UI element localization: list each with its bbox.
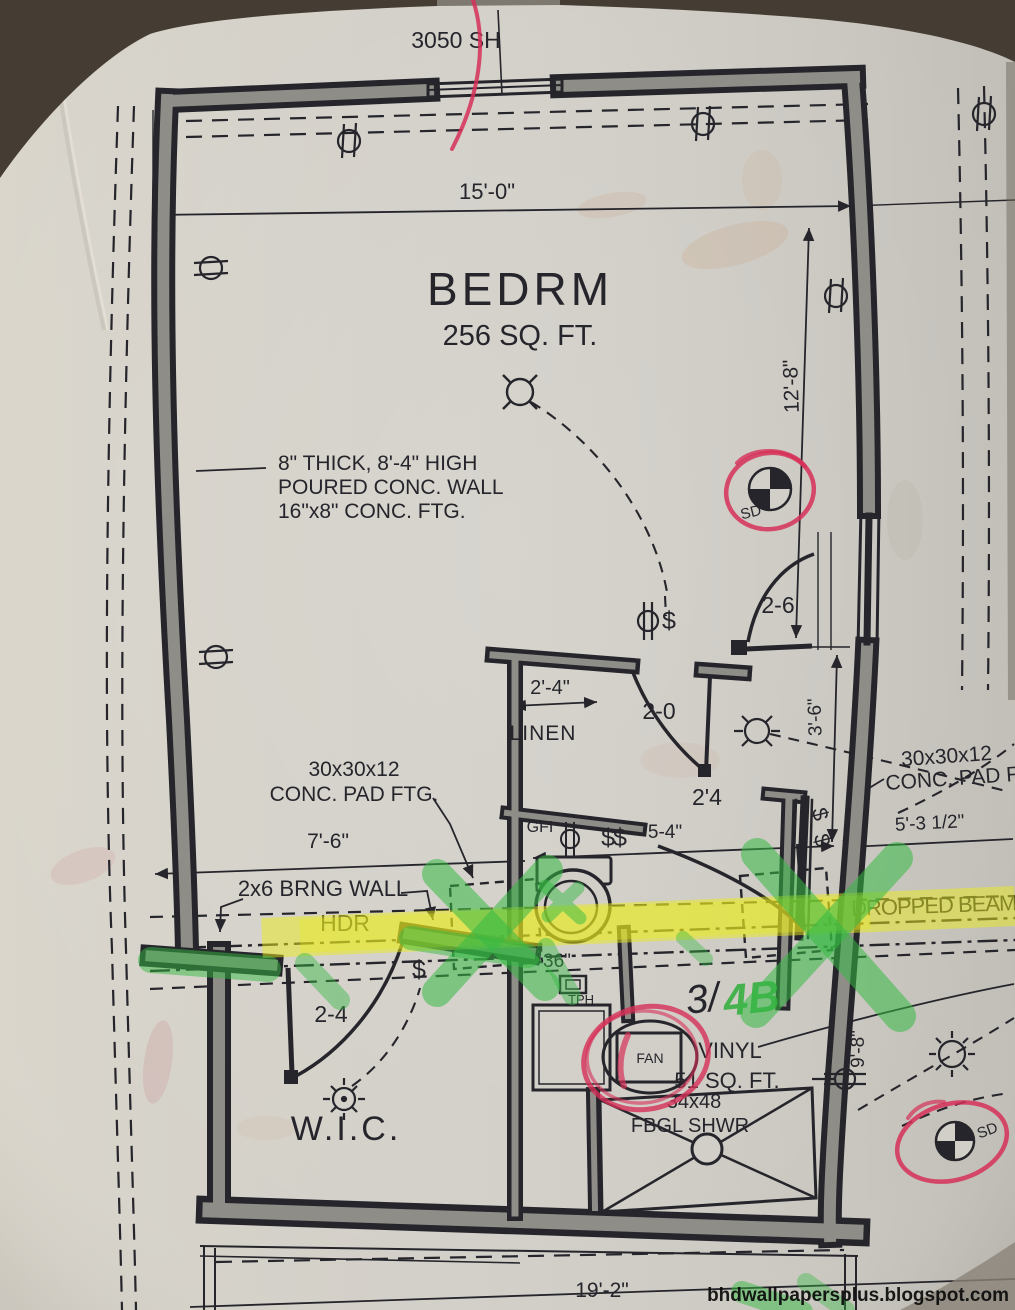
pad-left-line1: 30x30x12: [308, 758, 399, 781]
dim-bath-height: 9'-8": [848, 1030, 869, 1068]
wall-note-line2: POURED CONC. WALL: [278, 476, 504, 499]
dim-hall-depth: 3'-6": [804, 698, 826, 737]
dim-right-upper: 12'-8": [779, 359, 804, 413]
dim-top-width: 15'-0": [459, 179, 515, 204]
dim-bottom-width: 19'-2": [575, 1279, 629, 1302]
door-size-linen: 2-0: [642, 698, 675, 724]
smoke-detector-icon: [936, 1122, 974, 1160]
window-size-label: 3050 SH: [411, 27, 501, 53]
gfi-label: GFI: [527, 819, 554, 836]
switch-symbols: $$: [601, 824, 627, 852]
wall-note-line3: 16"x8" CONC. FTG.: [278, 500, 466, 523]
door-size-bath: 2'4: [692, 784, 722, 810]
blueprint-photo: 3050 SH 15'-0" BEDRM 256 SQ. FT. 8" THIC…: [0, 0, 1015, 1310]
room-name-bedroom: BEDRM: [427, 263, 613, 315]
wall-note-line1: 8" THICK, 8'-4" HIGH: [278, 452, 477, 475]
dim-bath-width: 5-4": [648, 822, 682, 843]
dim-linen-width: 2'-4": [530, 677, 570, 699]
bearing-wall-label: 2x6 BRNG WALL: [238, 876, 408, 901]
room-area-bedroom: 256 SQ. FT.: [443, 320, 598, 352]
watermark: bhdwallpapersplus.blogspot.com: [707, 1285, 1009, 1306]
shower-label-line2: FBGL SHWR: [631, 1115, 749, 1137]
door-size-bedroom: 2-6: [761, 592, 794, 618]
room-name-linen: LINEN: [510, 722, 577, 745]
pad-left-line2: CONC. PAD FTG.: [270, 783, 439, 806]
switch-symbol: $: [662, 607, 676, 635]
fan-label: FAN: [636, 1050, 663, 1066]
dim-left-span: 7'-6": [307, 830, 349, 853]
switch-symbol: $: [412, 956, 426, 984]
dim-right-offset: 5'-3 1/2": [894, 811, 965, 836]
room-name-wic: W.I.C.: [291, 1110, 402, 1148]
floor-plan: 3050 SH 15'-0" BEDRM 256 SQ. FT. 8" THIC…: [0, 0, 1015, 1310]
